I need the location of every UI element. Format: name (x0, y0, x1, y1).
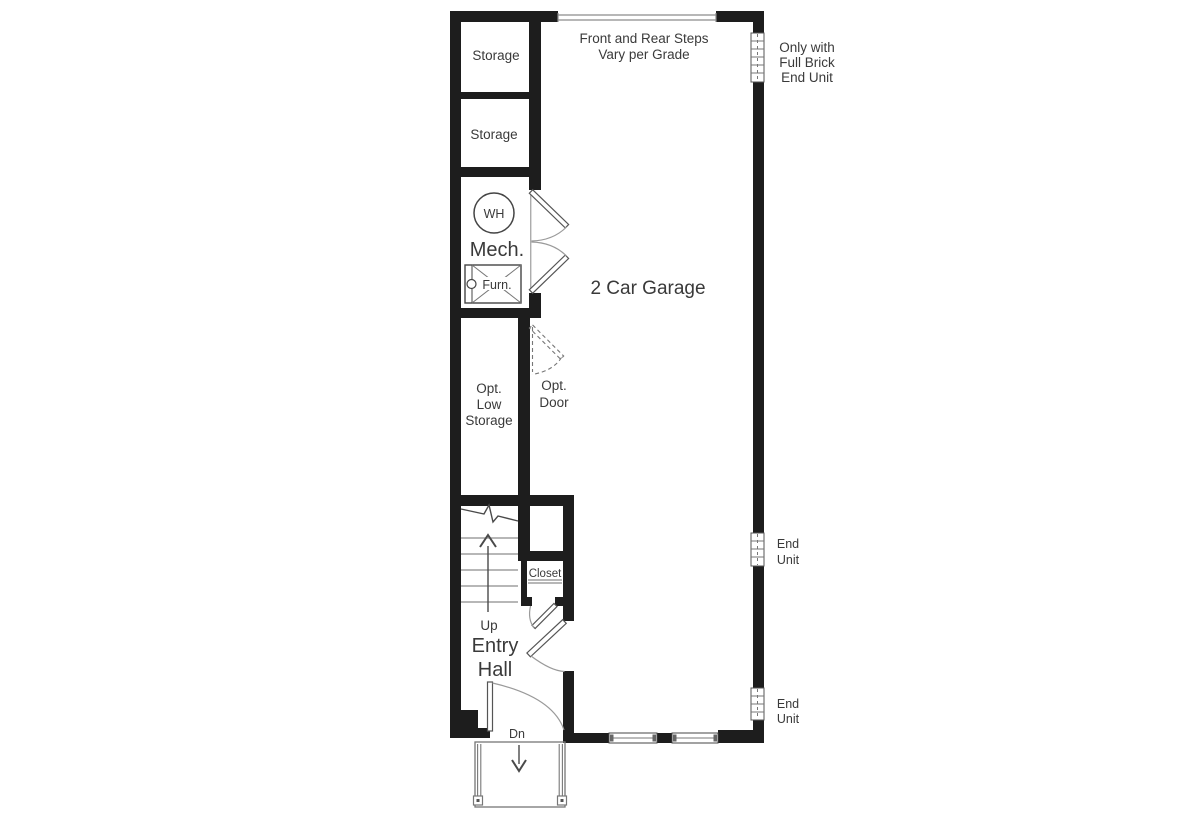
garage-door-opening (558, 13, 716, 22)
opt-low-storage-line-2: Low (477, 397, 502, 412)
floor-plan-canvas: Storage Storage WH Mech. Furn. Opt. Low … (0, 0, 1200, 822)
wall-closet-top (518, 551, 574, 561)
optional-door-symbol (529, 325, 563, 375)
stair-break-line (461, 505, 518, 522)
water-heater-label: WH (484, 207, 505, 221)
brick-note-line-2: Full Brick (779, 55, 835, 70)
mech-door-arc-top (532, 227, 567, 241)
staircase (461, 505, 518, 612)
brick-note-line-1: Only with (779, 40, 835, 55)
opt-low-storage-line-3: Storage (465, 413, 512, 428)
wall-top-left (450, 11, 558, 22)
front-door-arc (493, 683, 565, 730)
front-window-left (609, 733, 657, 743)
garage-label: 2 Car Garage (590, 278, 705, 299)
wall-interior-lower (518, 308, 530, 552)
wall-left (450, 11, 461, 738)
up-label: Up (480, 618, 497, 633)
wall-bottom-mid (563, 733, 609, 743)
closet-door-leaf (532, 603, 557, 628)
end-unit-window-bottom (751, 688, 764, 720)
end-unit-bottom-line-1: End (777, 697, 799, 711)
end-unit-window-mid (751, 533, 764, 566)
mech-door-arc-bottom (532, 242, 567, 256)
walls (450, 11, 764, 743)
wall-closet-bottom-right (555, 597, 574, 606)
wall-right-seg-3 (753, 720, 764, 743)
opt-door-line-2: Door (539, 395, 569, 410)
wall-bottom-pier (657, 733, 672, 743)
brick-window-top (751, 33, 764, 82)
entry-hall-line-1: Entry (472, 635, 519, 657)
mech-label: Mech. (470, 239, 524, 261)
wall-right-stub (753, 22, 764, 33)
wall-bottom-left (450, 728, 490, 738)
storage-2-label: Storage (470, 127, 517, 142)
wall-storage-divider-2 (450, 167, 541, 177)
end-unit-mid-line-1: End (777, 537, 799, 551)
furnace-label: Furn. (482, 278, 511, 292)
closet-label: Closet (529, 568, 562, 580)
wall-top-right (716, 11, 764, 22)
wall-stair-hall (450, 495, 573, 506)
steps-note-line-2: Vary per Grade (598, 47, 689, 62)
front-window-right (672, 733, 718, 743)
garage-entry-door-arc (531, 656, 565, 672)
storage-1-label: Storage (472, 48, 519, 63)
dn-label: Dn (509, 727, 525, 741)
opt-door-line-1: Opt. (541, 378, 567, 393)
entry-hall-line-2: Hall (478, 659, 512, 681)
wall-right-seg-2 (753, 566, 764, 688)
wall-closet-bottom-left (521, 597, 532, 606)
wall-storage-right-upper (529, 11, 541, 190)
opt-low-storage-line-1: Opt. (476, 381, 502, 396)
front-door-leaf (488, 682, 493, 731)
steps-note-line-1: Front and Rear Steps (579, 31, 708, 46)
front-entry (474, 682, 567, 807)
wall-closet-left (521, 561, 527, 597)
entry-stoop (474, 742, 567, 807)
stair-up-arrow-head (480, 535, 496, 547)
floor-plan-drawing: Storage Storage WH Mech. Furn. Opt. Low … (0, 0, 1200, 822)
garage-entry-door (527, 620, 566, 672)
end-unit-bottom-line-2: Unit (777, 712, 800, 726)
brick-note-line-3: End Unit (781, 70, 833, 85)
wall-storage-divider-1 (450, 92, 541, 99)
mech-door-leaf-top (529, 190, 568, 228)
wall-right-seg-1 (753, 82, 764, 533)
end-unit-mid-line-2: Unit (777, 553, 800, 567)
mech-double-doors (529, 190, 568, 293)
mech-door-leaf-bottom (529, 255, 568, 293)
wall-entry-right-lower (563, 671, 574, 743)
